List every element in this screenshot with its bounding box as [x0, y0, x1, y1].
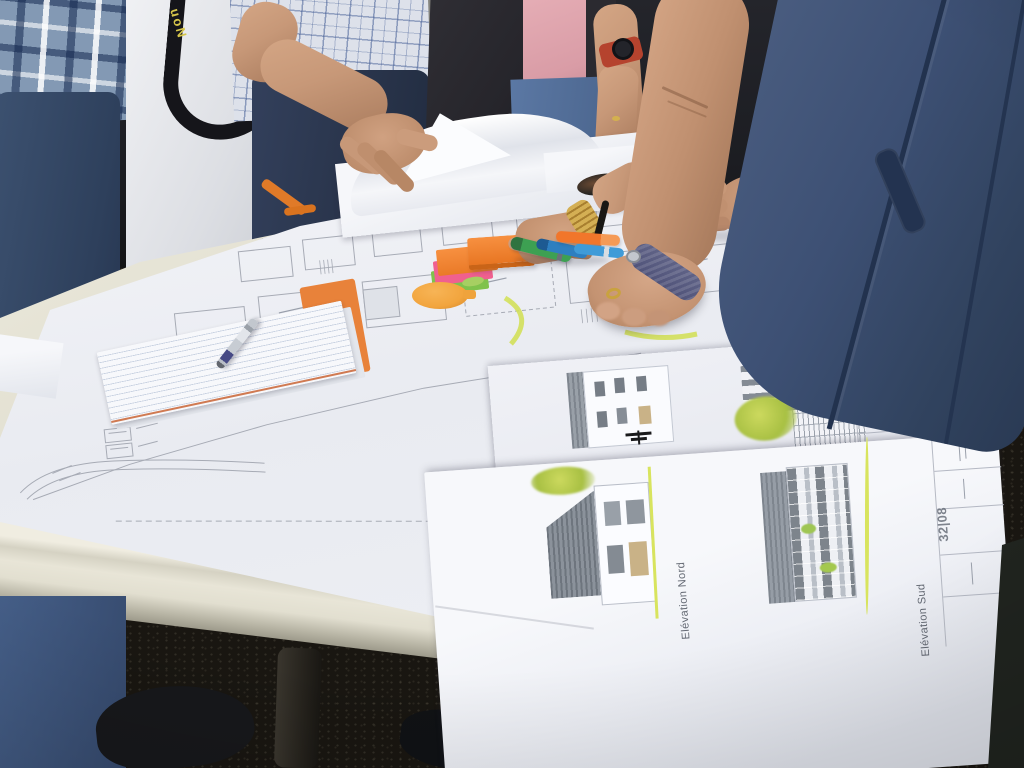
paper-overhang-left: [0, 333, 64, 398]
elevation-nord-label: Elévation Nord: [675, 555, 697, 646]
elevation-sud-facade: [786, 463, 857, 602]
elevation-sud-label: Elévation Sud: [915, 574, 937, 665]
elevation-nord-gable: [544, 491, 601, 599]
sticky-paddle-round: [412, 282, 468, 309]
elevation-sheet-front: Elévation Nord Elévation Sud 32|08: [424, 432, 1021, 768]
table-leg: [274, 647, 322, 768]
sud-ground-line: [865, 437, 869, 615]
weathervane-glyph: [625, 430, 652, 446]
knuckle: [596, 302, 620, 320]
photo-scene: uoN: [0, 0, 1024, 768]
elevation-nord-facade: [594, 482, 657, 606]
sheet-crease: [435, 605, 594, 629]
knuckle-3: [648, 310, 670, 326]
fitness-band-clasp: [626, 250, 641, 263]
pink-person-ring: [612, 116, 620, 121]
knuckle-2: [622, 308, 646, 326]
sticky-paddle-tab: [463, 290, 476, 299]
tree-front-sheet: [530, 465, 596, 497]
